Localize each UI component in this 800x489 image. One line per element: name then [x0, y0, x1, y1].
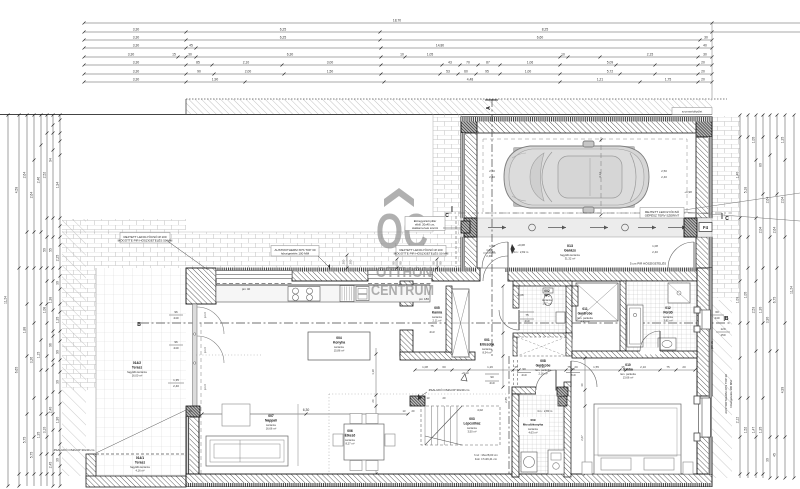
svg-text:6,30: 6,30: [303, 408, 310, 412]
svg-text:Mosdókonyha: Mosdókonyha: [523, 423, 543, 427]
svg-text:5,18: 5,18: [744, 187, 748, 194]
svg-text:|B: |B: [723, 316, 728, 322]
svg-text:kerámia: kerámia: [542, 298, 552, 302]
svg-text:1,55: 1,55: [593, 365, 599, 369]
svg-text:1,40: 1,40: [736, 172, 740, 179]
svg-text:11,24: 11,24: [790, 286, 794, 294]
svg-text:3,30: 3,30: [133, 44, 140, 48]
svg-text:MÖGÖTTE PIR HŐSZIGETELÉS 50 MM: MÖGÖTTE PIR HŐSZIGETELÉS 50 MM: [394, 251, 449, 256]
svg-text:5,72: 5,72: [607, 70, 614, 74]
svg-text:4,02: 4,02: [477, 408, 483, 412]
svg-text:C: C: [725, 216, 729, 222]
svg-text:3,00: 3,00: [327, 61, 334, 65]
svg-text:43: 43: [448, 61, 452, 65]
svg-text:6,25: 6,25: [280, 36, 287, 40]
svg-text:30: 30: [704, 36, 708, 40]
svg-text:008: 008: [540, 359, 546, 363]
svg-text:Konyha: Konyha: [333, 341, 345, 345]
svg-text:Terasz: Terasz: [135, 461, 146, 465]
svg-text:2,45: 2,45: [49, 462, 53, 469]
svg-text:90: 90: [432, 261, 436, 265]
svg-text:statikai tervek szerint: statikai tervek szerint: [412, 226, 438, 230]
svg-text:Étkező: Étkező: [345, 433, 356, 438]
svg-text:F4: F4: [703, 225, 709, 230]
svg-text:60: 60: [442, 365, 446, 369]
svg-text:009: 009: [530, 418, 535, 422]
svg-text:1,08: 1,08: [652, 244, 658, 248]
svg-text:szomszédépület: szomszédépület: [682, 110, 702, 114]
svg-text:95: 95: [485, 70, 489, 74]
svg-text:004: 004: [336, 336, 342, 340]
svg-text:53: 53: [446, 70, 450, 74]
svg-text:16,66 m²: 16,66 m²: [266, 427, 277, 431]
svg-text:210: 210: [521, 373, 526, 377]
svg-text:lam. parketta: lam. parketta: [535, 368, 551, 372]
svg-text:pm 0: pm 0: [203, 383, 207, 390]
svg-text:3,26: 3,26: [30, 357, 34, 364]
svg-text:4,48: 4,48: [467, 78, 474, 82]
svg-text:55: 55: [49, 248, 53, 252]
svg-text:14,80: 14,80: [436, 44, 444, 48]
svg-text:20: 20: [701, 78, 705, 82]
svg-text:1,75: 1,75: [665, 78, 672, 82]
svg-text:2,52: 2,52: [43, 172, 47, 179]
svg-text:1,30: 1,30: [759, 307, 763, 314]
svg-text:75: 75: [666, 365, 670, 369]
svg-text:014/2: 014/2: [133, 361, 141, 365]
svg-text:90: 90: [490, 375, 494, 379]
svg-text:2,15: 2,15: [647, 53, 654, 57]
svg-text:kerámia: kerámia: [266, 423, 276, 427]
svg-text:2,64: 2,64: [30, 192, 34, 199]
svg-text:8,27 m²: 8,27 m²: [345, 442, 354, 446]
svg-text:200: 200: [349, 259, 353, 264]
svg-text:2,67: 2,67: [580, 435, 584, 441]
svg-text:3,30: 3,30: [133, 28, 140, 32]
svg-text:210: 210: [570, 373, 575, 377]
svg-text:2,64: 2,64: [23, 172, 27, 179]
svg-text:1,05: 1,05: [744, 292, 748, 299]
svg-text:lam. parketta: lam. parketta: [577, 316, 593, 320]
svg-text:Garázs: Garázs: [564, 249, 576, 253]
svg-text:pm 90: pm 90: [710, 341, 714, 350]
svg-text:1,47: 1,47: [752, 427, 756, 434]
svg-text:kerámia: kerámia: [345, 438, 355, 442]
svg-text:4,40 m²: 4,40 m²: [580, 320, 589, 324]
svg-text:11,24: 11,24: [4, 296, 8, 304]
svg-text:OTTHON: OTTHON: [376, 265, 432, 281]
svg-text:30: 30: [56, 281, 60, 285]
svg-text:150: 150: [720, 333, 725, 337]
svg-text:90: 90: [571, 367, 575, 371]
svg-text:Gardrobe: Gardrobe: [578, 312, 593, 316]
svg-text:3,30: 3,30: [128, 53, 135, 57]
svg-text:90: 90: [56, 350, 60, 354]
svg-text:GÉPÉSZ TERV SZERINT: GÉPÉSZ TERV SZERINT: [645, 213, 680, 218]
svg-text:2,40: 2,40: [486, 254, 492, 258]
svg-text:1,05: 1,05: [752, 137, 756, 144]
svg-text:+0,08: +0,08: [516, 293, 524, 297]
svg-text:fagyálló kerámia: fagyálló kerámia: [560, 253, 580, 257]
svg-text:30: 30: [580, 383, 584, 387]
svg-text:002: 002: [544, 289, 550, 293]
svg-text:1,08: 1,08: [489, 244, 495, 248]
svg-text:1,08: 1,08: [43, 307, 47, 314]
svg-text:210: 210: [524, 319, 529, 323]
svg-text:Gardrobe: Gardrobe: [536, 364, 551, 368]
svg-text:87: 87: [486, 61, 490, 65]
svg-text:2,40: 2,40: [49, 407, 53, 414]
svg-text:90: 90: [522, 367, 526, 371]
svg-text:30: 30: [56, 458, 60, 462]
svg-text:96: 96: [49, 343, 53, 347]
svg-text:2,12: 2,12: [736, 417, 740, 424]
svg-text:3,10: 3,10: [43, 427, 47, 434]
svg-text:75: 75: [525, 313, 529, 317]
svg-text:2,50: 2,50: [661, 169, 667, 173]
svg-text:Kamra: Kamra: [432, 311, 442, 315]
svg-text:2,53: 2,53: [752, 307, 756, 314]
svg-text:213: 213: [429, 330, 434, 334]
svg-text:6,60: 6,60: [537, 36, 544, 40]
svg-text:kerámia: kerámia: [528, 427, 538, 431]
svg-text:35: 35: [514, 365, 518, 369]
svg-text:8,25: 8,25: [542, 28, 549, 32]
svg-text:30: 30: [703, 53, 707, 57]
svg-text:120: 120: [720, 327, 725, 331]
svg-text:96: 96: [174, 310, 178, 314]
svg-text:2,64: 2,64: [773, 227, 777, 234]
svg-text:Fok: 17x29,41 cm: Fok: 17x29,41 cm: [475, 457, 498, 461]
svg-text:+0,08: +0,08: [517, 243, 525, 247]
svg-text:5,75: 5,75: [30, 452, 34, 459]
svg-text:20: 20: [701, 61, 705, 65]
svg-text:013: 013: [567, 244, 573, 248]
svg-text:2,10: 2,10: [243, 61, 250, 65]
svg-text:pm 0: pm 0: [203, 346, 207, 353]
svg-text:2,10: 2,10: [640, 365, 646, 369]
svg-text:15,86 m²: 15,86 m²: [334, 349, 345, 353]
svg-text:3,30: 3,30: [133, 61, 140, 65]
svg-text:Szoba: Szoba: [623, 368, 633, 372]
svg-text:30: 30: [188, 53, 192, 57]
svg-text:30: 30: [56, 380, 60, 384]
svg-text:2,04: 2,04: [781, 197, 785, 204]
svg-text:16,00 m²: 16,00 m²: [132, 374, 143, 378]
svg-text:A: A: [486, 106, 492, 110]
svg-text:8,34 m²: 8,34 m²: [482, 351, 491, 355]
svg-text:45: 45: [189, 44, 193, 48]
svg-text:1,15: 1,15: [37, 352, 41, 359]
svg-text:005: 005: [434, 306, 440, 310]
svg-text:50: 50: [43, 248, 47, 252]
svg-text:2,46: 2,46: [37, 177, 41, 184]
svg-text:1,21: 1,21: [597, 78, 604, 82]
svg-text:60: 60: [464, 70, 468, 74]
svg-text:1,03: 1,03: [736, 297, 740, 304]
svg-text:13,66 m²: 13,66 m²: [623, 376, 634, 380]
svg-text:kerámia: kerámia: [663, 315, 673, 319]
svg-text:4,99: 4,99: [781, 387, 785, 394]
svg-text:Fürdő: Fürdő: [663, 311, 672, 315]
svg-text:90: 90: [392, 261, 396, 265]
svg-text:6,25: 6,25: [280, 28, 287, 32]
svg-text:bm : 2,82 m: bm : 2,82 m: [514, 250, 529, 254]
svg-text:kerámia: kerámia: [467, 426, 477, 430]
svg-text:1,08: 1,08: [422, 365, 428, 369]
svg-text:4,16 m²: 4,16 m²: [135, 469, 144, 473]
svg-text:Terasz: Terasz: [132, 366, 143, 370]
svg-text:fagyálló kerámia: fagyálló kerámia: [127, 370, 147, 374]
svg-text:1,06: 1,06: [527, 61, 534, 65]
svg-text:1,94: 1,94: [56, 182, 60, 189]
svg-text:90: 90: [197, 70, 201, 74]
svg-text:10: 10: [561, 53, 565, 57]
svg-text:5 cm PIR HŐSZIGETELÉS: 5 cm PIR HŐSZIGETELÉS: [630, 261, 666, 266]
svg-text:75: 75: [430, 324, 434, 328]
svg-text:ZSALUKŐ OSZLOP 30x30 cm: ZSALUKŐ OSZLOP 30x30 cm: [54, 447, 95, 452]
svg-text:5,09: 5,09: [607, 61, 614, 65]
svg-text:85: 85: [196, 61, 200, 65]
svg-text:94: 94: [49, 158, 53, 162]
svg-text:6,65: 6,65: [15, 367, 19, 374]
svg-text:001: 001: [484, 338, 490, 342]
svg-text:20: 20: [682, 365, 686, 369]
svg-text:5,75: 5,75: [23, 437, 27, 444]
svg-text:MÖGÖTTE PIR HŐSZIGETELÉS 50 MM: MÖGÖTTE PIR HŐSZIGETELÉS 50 MM: [118, 238, 173, 243]
svg-text:2,16 m²: 2,16 m²: [538, 372, 547, 376]
svg-text:80: 80: [759, 163, 763, 167]
svg-text:fagyálló kerámia: fagyálló kerámia: [130, 465, 150, 469]
svg-text:1,35: 1,35: [173, 378, 179, 382]
svg-text:210: 210: [489, 381, 494, 385]
svg-text:4,59: 4,59: [15, 187, 19, 194]
svg-text:1,18: 1,18: [371, 369, 375, 375]
svg-text:30: 30: [766, 458, 770, 462]
svg-text:010: 010: [625, 363, 631, 367]
svg-text:Lépcsőház: Lépcsőház: [463, 422, 480, 426]
svg-text:6,30: 6,30: [287, 53, 294, 57]
svg-text:40: 40: [703, 44, 707, 48]
svg-text:2,11 m²: 2,11 m²: [433, 319, 442, 323]
svg-text:pm 40: pm 40: [242, 287, 251, 291]
svg-text:1,90: 1,90: [56, 417, 60, 424]
svg-text:pm 180: pm 180: [419, 297, 429, 301]
svg-text:Nappali: Nappali: [265, 419, 277, 423]
svg-text:014/1: 014/1: [136, 456, 144, 460]
svg-text:003: 003: [469, 417, 475, 421]
svg-text:pm 0: pm 0: [203, 311, 207, 318]
svg-text:2,50: 2,50: [489, 169, 495, 173]
svg-text:ZSALUKŐ OSZLOP 30x30 cm: ZSALUKŐ OSZLOP 30x30 cm: [429, 387, 470, 392]
svg-text:3,30: 3,30: [133, 78, 140, 82]
svg-text:011: 011: [582, 307, 587, 311]
svg-text:18,70: 18,70: [393, 19, 401, 23]
svg-text:1,50: 1,50: [327, 70, 334, 74]
svg-text:70: 70: [466, 61, 470, 65]
svg-text:3,30: 3,30: [133, 36, 140, 40]
svg-text:kerámia: kerámia: [334, 345, 344, 349]
svg-text:AUSTROTHERM XPS TOP 30: AUSTROTHERM XPS TOP 30: [724, 374, 728, 414]
svg-text:2,40: 2,40: [173, 384, 179, 388]
svg-text:20: 20: [701, 70, 705, 74]
svg-text:2,40: 2,40: [489, 175, 495, 179]
svg-text:90: 90: [399, 261, 403, 265]
svg-text:006: 006: [347, 429, 353, 433]
svg-text:1,35: 1,35: [37, 432, 41, 439]
svg-text:1,38: 1,38: [49, 297, 53, 304]
svg-text:007: 007: [268, 414, 274, 418]
svg-text:3,81 m²: 3,81 m²: [663, 319, 672, 323]
svg-text:2,40: 2,40: [652, 250, 658, 254]
svg-text:1,67 m²: 1,67 m²: [542, 302, 551, 306]
svg-text:2,25: 2,25: [56, 255, 60, 262]
svg-text:2,00: 2,00: [245, 70, 252, 74]
svg-text:3,90: 3,90: [766, 317, 770, 324]
svg-text:60: 60: [715, 310, 719, 314]
svg-text:kerámia: kerámia: [482, 347, 492, 351]
svg-text:3,50 m²: 3,50 m²: [467, 430, 476, 434]
svg-text:4,63 m²: 4,63 m²: [528, 431, 537, 435]
svg-text:240: 240: [173, 346, 178, 350]
svg-text:hőszigetelés 100 MM: hőszigetelés 100 MM: [281, 252, 310, 256]
svg-text:90: 90: [439, 261, 443, 265]
svg-text:20: 20: [574, 365, 578, 369]
svg-text:1,35: 1,35: [781, 137, 785, 144]
svg-text:2,85: 2,85: [504, 397, 508, 403]
svg-text:200: 200: [342, 259, 346, 264]
svg-text:2,40: 2,40: [489, 250, 495, 254]
svg-text:lam. parketta: lam. parketta: [620, 372, 636, 376]
svg-text:Előszoba: Előszoba: [480, 343, 495, 347]
svg-text:2,40: 2,40: [661, 175, 667, 179]
svg-text:C: C: [445, 213, 449, 219]
svg-text:240: 240: [173, 316, 178, 320]
svg-text:1,26: 1,26: [487, 365, 493, 369]
svg-text:012: 012: [665, 306, 671, 310]
svg-text:240: 240: [714, 316, 719, 320]
svg-text:96: 96: [174, 340, 178, 344]
svg-text:3,30: 3,30: [133, 70, 140, 74]
svg-text:20: 20: [371, 399, 375, 403]
svg-text:1,05: 1,05: [427, 53, 434, 57]
svg-text:1,00: 1,00: [525, 70, 532, 74]
svg-text:2,04: 2,04: [759, 227, 763, 234]
svg-text:1,52: 1,52: [744, 427, 748, 434]
svg-text:10: 10: [400, 53, 404, 57]
svg-text:6,75: 6,75: [773, 297, 777, 304]
svg-text:1,88: 1,88: [23, 327, 27, 334]
svg-text:hőszigetelés 100 MM: hőszigetelés 100 MM: [729, 380, 733, 408]
svg-text:B: B: [137, 322, 141, 328]
svg-text:15: 15: [172, 53, 176, 57]
svg-text:WC: WC: [544, 294, 550, 298]
svg-text:1,35: 1,35: [56, 317, 60, 324]
svg-text:+0,98: +0,98: [684, 190, 692, 194]
svg-text:1,35: 1,35: [759, 427, 763, 434]
svg-text:1,90: 1,90: [212, 78, 219, 82]
svg-text:45: 45: [773, 453, 777, 457]
svg-text:31,32 m²: 31,32 m²: [565, 257, 576, 261]
svg-text:kerámia: kerámia: [432, 315, 442, 319]
svg-text:4,14: 4,14: [598, 172, 602, 178]
svg-text:bm : 2,80 m: bm : 2,80 m: [538, 409, 553, 413]
svg-text:40: 40: [188, 409, 192, 413]
